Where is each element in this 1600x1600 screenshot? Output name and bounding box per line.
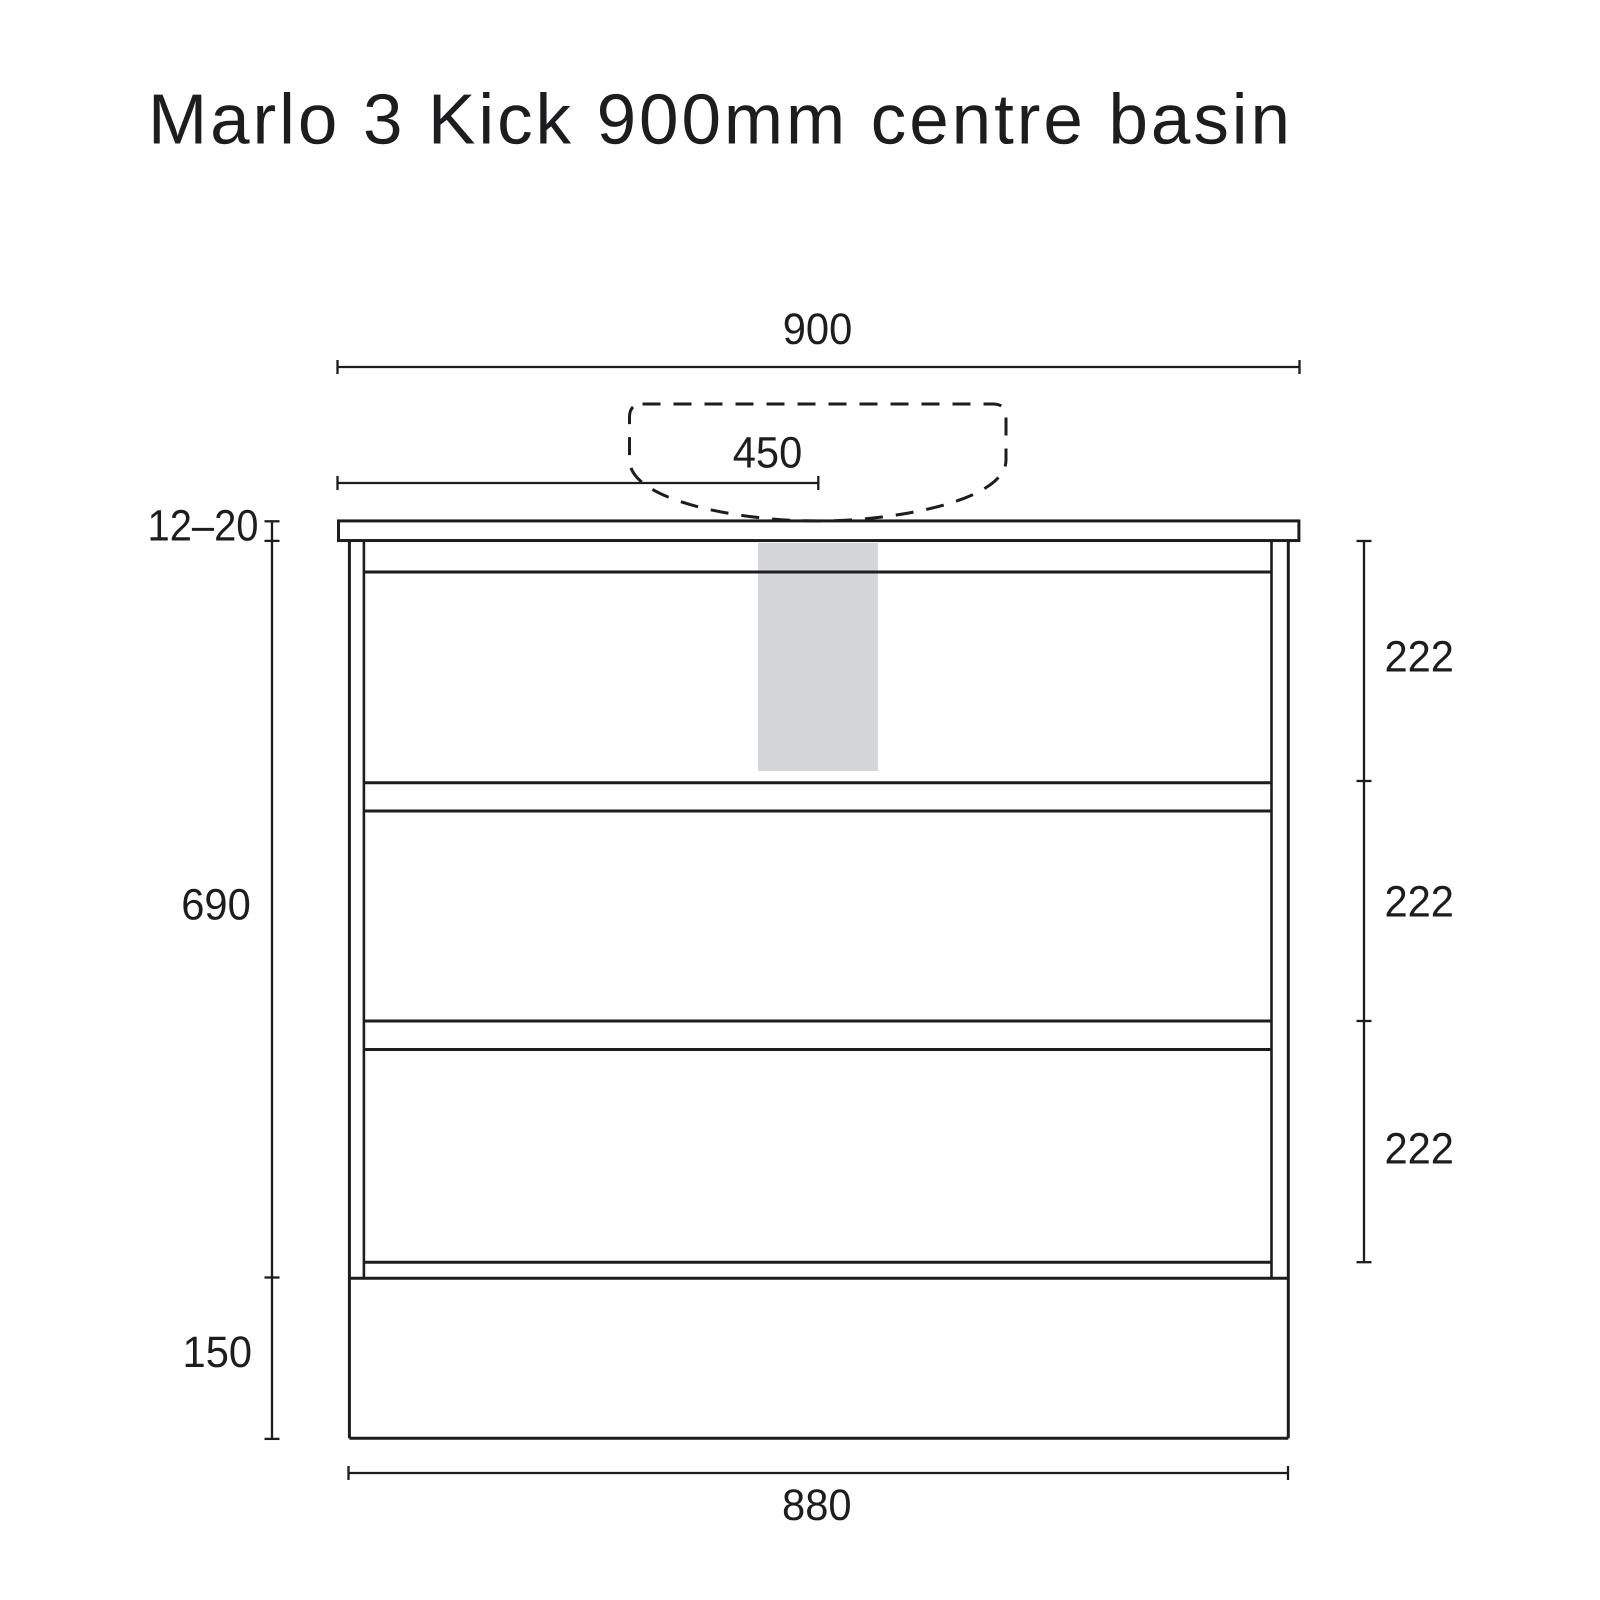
svg-text:690: 690 [181, 881, 251, 930]
svg-text:150: 150 [183, 1328, 253, 1377]
svg-text:222: 222 [1384, 632, 1454, 681]
svg-text:Marlo 3 Kick 900mm centre basi: Marlo 3 Kick 900mm centre basin [148, 81, 1290, 160]
svg-text:222: 222 [1384, 878, 1454, 927]
svg-text:12–20: 12–20 [148, 502, 259, 551]
svg-text:900: 900 [783, 305, 853, 354]
svg-text:450: 450 [733, 429, 803, 478]
svg-text:222: 222 [1384, 1125, 1454, 1174]
svg-text:880: 880 [782, 1481, 852, 1530]
